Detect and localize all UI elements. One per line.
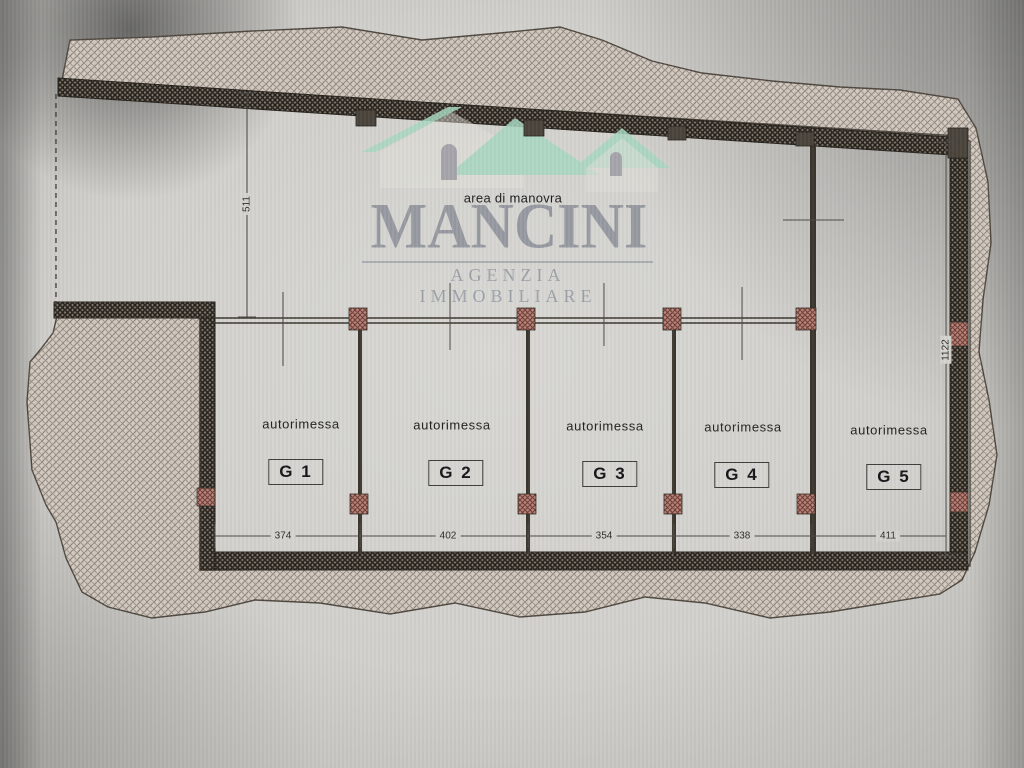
dimension-label: 338: [730, 531, 755, 542]
pilaster: [197, 488, 215, 506]
pilaster: [349, 308, 367, 330]
pilaster: [950, 492, 968, 512]
dimension-label: 402: [436, 531, 461, 542]
garage-code-badge: G 2: [428, 460, 483, 486]
wall-garage-left: [200, 303, 215, 570]
floor-plan-drawing: [0, 0, 1024, 768]
dimension-label: 354: [592, 531, 617, 542]
wall-block: [668, 126, 686, 140]
pilaster: [663, 308, 681, 330]
pilaster: [517, 308, 535, 330]
garage-code-badge: G 1: [268, 459, 323, 485]
logo-chimney-left: [441, 144, 457, 180]
garage-type-label: autorimessa: [850, 423, 927, 438]
garage-type-label: autorimessa: [413, 418, 490, 433]
maneuver-area-label: area di manovra: [464, 191, 562, 206]
dimension-label-right-depth: 1122: [941, 336, 952, 364]
wall-divider-g2-g3: [526, 320, 530, 554]
garage-type-label: autorimessa: [262, 417, 339, 432]
garage-type-label: autorimessa: [704, 420, 781, 435]
pilaster: [796, 308, 816, 330]
dimension-label-left-depth: 511: [242, 193, 253, 215]
wall-divider-g1-g2: [358, 320, 362, 554]
wall-maneuver-left: [54, 302, 215, 318]
garage-code-badge: G 5: [866, 464, 921, 490]
pilaster: [664, 494, 682, 514]
pilaster: [950, 322, 968, 346]
garage-code-badge: G 3: [582, 461, 637, 487]
photographed-floor-plan: MANCINI AGENZIA IMMOBILIARE area di mano…: [0, 0, 1024, 768]
wall-block: [356, 110, 376, 126]
garage-type-label: autorimessa: [566, 419, 643, 434]
wall-block: [796, 132, 814, 146]
wall-block: [524, 120, 544, 136]
wall-g5-left: [810, 144, 816, 554]
dimension-label: 374: [271, 531, 296, 542]
wall-divider-g3-g4: [672, 320, 676, 554]
garage-code-badge: G 4: [714, 462, 769, 488]
logo-chimney-right: [610, 152, 622, 176]
dimension-label: 411: [876, 531, 900, 542]
wall-bottom: [200, 552, 968, 570]
pilaster: [797, 494, 815, 514]
pilaster: [350, 494, 368, 514]
pilaster: [518, 494, 536, 514]
wall-block: [948, 128, 968, 158]
